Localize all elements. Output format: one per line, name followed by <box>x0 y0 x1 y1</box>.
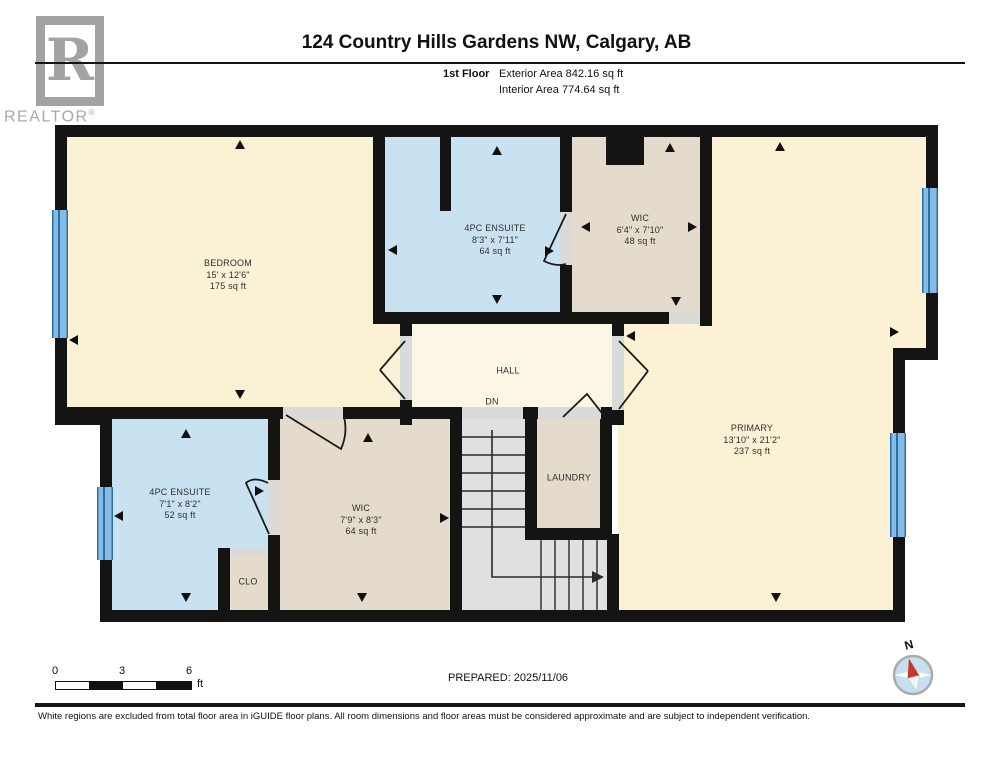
wall-chase <box>606 137 644 165</box>
wall <box>700 131 712 326</box>
wall <box>440 131 451 211</box>
window <box>890 433 906 537</box>
wall <box>218 548 230 616</box>
window <box>922 188 938 293</box>
door-opening <box>268 480 280 535</box>
stairs-floor <box>525 540 607 616</box>
wall <box>55 125 938 137</box>
wall <box>525 528 612 540</box>
scale-tick-0: 0 <box>43 665 67 677</box>
header-divider <box>35 62 965 64</box>
scale-bar-segment <box>156 682 191 689</box>
realtor-logo-word: REALTOR® <box>4 108 134 126</box>
floor-plan-page: R REALTOR® 124 Country Hills Gardens NW,… <box>0 0 993 768</box>
realtor-logo: R REALTOR® <box>0 0 140 135</box>
wall <box>373 131 385 324</box>
room-label-laundry: LAUNDRY <box>547 472 591 484</box>
floor-label: 1st Floor <box>443 68 489 80</box>
room-label-wic-top: WIC 6'4" x 7'10" 48 sq ft <box>617 213 664 248</box>
stairs-floor <box>462 419 525 616</box>
scale-bar <box>55 681 192 690</box>
stairs-down-label: DN <box>485 396 498 408</box>
scale-unit: ft <box>197 678 203 690</box>
realtor-logo-box: R <box>36 16 104 106</box>
wall <box>55 407 462 419</box>
scale-tick-6: 6 <box>177 665 201 677</box>
door-opening <box>612 336 624 410</box>
window <box>97 487 113 560</box>
exterior-area: Exterior Area 842.16 sq ft <box>499 68 623 80</box>
interior-area: Interior Area 774.64 sq ft <box>499 84 619 96</box>
disclaimer-text: White regions are excluded from total fl… <box>38 711 810 722</box>
room-label-ensuite-bottom: 4PC ENSUITE 7'1" x 8'2" 52 sq ft <box>149 487 210 522</box>
room-label-ensuite-top: 4PC ENSUITE 8'3" x 7'11" 64 sq ft <box>464 223 525 258</box>
room-label-primary: PRIMARY 13'10" x 21'2" 237 sq ft <box>723 423 780 458</box>
door-opening <box>230 548 268 555</box>
page-title: 124 Country Hills Gardens NW, Calgary, A… <box>0 32 993 54</box>
room-label-closet: CLO <box>238 576 257 588</box>
door-opening <box>560 212 572 265</box>
scale-bar-segment <box>89 682 123 689</box>
compass-north-label: N <box>903 637 915 653</box>
room-label-hall: HALL <box>496 365 519 377</box>
wall <box>373 312 669 324</box>
room-label-wic-bottom: WIC 7'9" x 8'3" 64 sq ft <box>340 503 382 538</box>
prepared-date: PREPARED: 2025/11/06 <box>448 672 568 684</box>
window <box>52 210 68 338</box>
scale-tick-3: 3 <box>110 665 134 677</box>
door-opening <box>538 407 601 419</box>
room-primary-floor <box>618 318 905 616</box>
footer-divider <box>35 703 965 707</box>
registered-mark: ® <box>89 108 96 117</box>
wall <box>600 413 612 540</box>
compass-icon: N <box>885 634 941 700</box>
wall <box>607 534 619 616</box>
wall <box>450 413 462 616</box>
door-opening <box>283 407 343 419</box>
wall <box>525 413 537 540</box>
door-opening <box>669 312 700 324</box>
room-label-bedroom: BEDROOM 15' x 12'6" 175 sq ft <box>204 258 252 293</box>
door-opening <box>400 336 412 400</box>
stair-threshold <box>462 407 523 419</box>
